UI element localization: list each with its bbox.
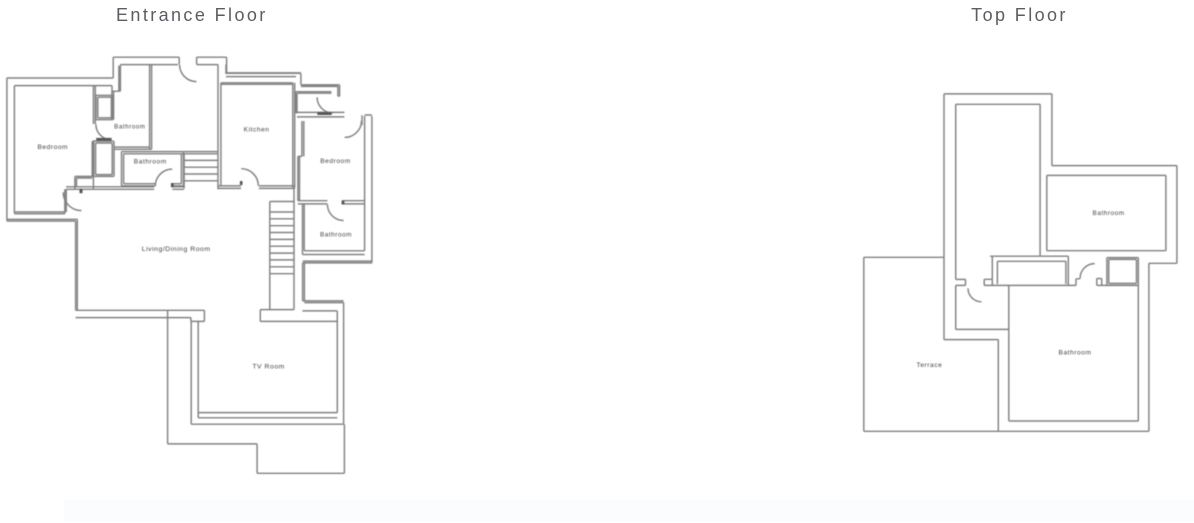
svg-text:Bedroom: Bedroom [320, 158, 351, 165]
svg-text:Bathroom: Bathroom [1059, 350, 1092, 357]
svg-text:Bathroom: Bathroom [134, 159, 167, 166]
svg-text:Bathroom: Bathroom [1093, 210, 1125, 217]
svg-text:Bathroom: Bathroom [320, 231, 352, 238]
svg-text:Bedroom: Bedroom [37, 144, 68, 151]
svg-text:Bathroom: Bathroom [114, 124, 145, 131]
svg-text:Living/Dining Room: Living/Dining Room [142, 246, 211, 253]
svg-text:Kitchen: Kitchen [244, 127, 270, 134]
svg-text:Terrace: Terrace [916, 362, 942, 369]
svg-text:TV Room: TV Room [252, 364, 285, 371]
